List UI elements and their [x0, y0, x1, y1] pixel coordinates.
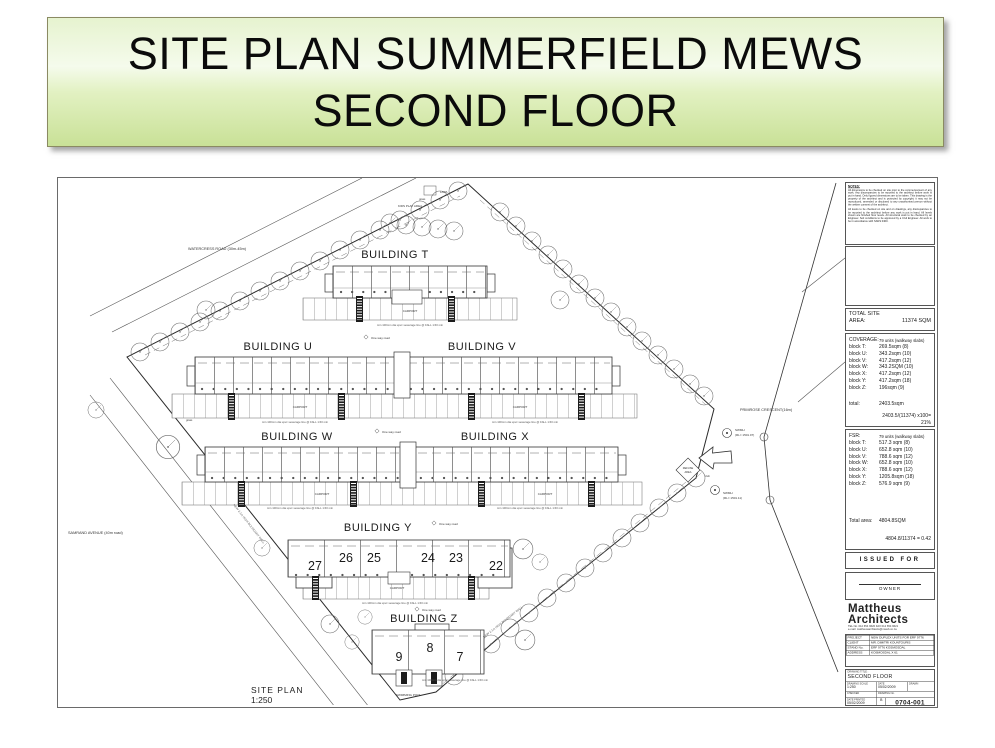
club-label: club	[705, 474, 710, 478]
entrance-arrow	[699, 447, 732, 469]
fsr-row-value: 576.9 sqm (9)	[879, 481, 931, 488]
notes-paragraph-2: All levels to be checked on site and on …	[848, 209, 932, 223]
carport-label-x: CARPORT	[538, 492, 553, 496]
address-value: KOSMOSDAL X 61	[870, 650, 934, 655]
scale-value: 1:250	[847, 686, 876, 690]
y-unit-23: 23	[449, 551, 463, 565]
swimming-pool-label: SWIMMING POOL	[396, 693, 421, 697]
carport-label-v: CARPORT	[513, 405, 528, 409]
coverage-box: COVERAGE: 79 units (walkway slabs) block…	[845, 333, 935, 427]
site-plan-drawing: BUILDING T BUILDING U BUILDING V BUILDIN…	[58, 178, 935, 705]
z-unit-8: 8	[427, 641, 434, 655]
one-way-label-1: One way road	[371, 336, 390, 340]
carport-label-t: CARPORT	[403, 309, 418, 313]
sewer-note-x: min 100mm dia upvc sewerage line @ FALL …	[497, 506, 564, 510]
fsr-row-value: 652.8 sqm (10)	[879, 447, 931, 454]
y-unit-26: 26	[339, 551, 353, 565]
building-x-label: BUILDING X	[461, 431, 529, 443]
y-unit-24: 24	[421, 551, 435, 565]
fsr-total-label: Total area:	[849, 518, 872, 525]
kids-play-label: KIDS PLAY AREA	[398, 204, 422, 208]
z-unit-7: 7	[457, 650, 464, 664]
fsr-row-value: 517.3 sqm (8)	[879, 440, 931, 447]
total-site-value: 11374 SQM	[902, 318, 931, 325]
coverage-row-label: block T:	[849, 344, 866, 351]
fsr-row-value: 652.8 sqm (10)	[879, 460, 931, 467]
lapa-structure	[424, 186, 436, 195]
building-t-label: BUILDING T	[361, 249, 429, 261]
fsr-box: FSR: 79 units (walkway slabs) block T:51…	[845, 429, 935, 550]
fsr-units: 79 units (walkway slabs)	[879, 433, 931, 440]
z-unit-9: 9	[396, 650, 403, 664]
coverage-row-value: 269.5sqm (8)	[879, 344, 931, 351]
grass-label-2: grass	[186, 418, 193, 422]
coverage-row-label: block X:	[849, 371, 867, 378]
swmh-marker-1	[723, 429, 732, 438]
coverage-units: 79 units (walkway slabs)	[879, 337, 931, 344]
y-unit-22: 22	[489, 559, 503, 573]
coverage-calc-2: 21%	[921, 420, 931, 427]
swmh-marker-2	[711, 486, 720, 495]
coverage-row-label: block Z:	[849, 385, 867, 392]
building-y-label: BUILDING Y	[344, 522, 412, 534]
notes-paragraph-1: All dimensions to be checked on site pri…	[848, 189, 932, 206]
fsr-row-label: block T:	[849, 440, 866, 447]
title-banner: SITE PLAN SUMMERFIELD MEWS SECOND FLOOR	[47, 17, 944, 147]
coverage-row-value: 196sqm (9)	[879, 385, 931, 392]
sewer-note-u: min 100mm dia upvc sewerage line @ FALL …	[262, 420, 329, 424]
total-site-box: TOTAL SITE AREA: 11374 SQM	[845, 308, 935, 331]
drawn-label: DRAWN	[909, 683, 933, 686]
plan-caption-scale: 1:250	[251, 695, 273, 705]
refuse-area-label-1: REFUSE	[683, 466, 694, 470]
revision-value: B	[878, 699, 885, 703]
road-label-primrose: PRIMROSE CRESCENT(16m)	[740, 408, 793, 412]
drawing-info-box: DRAWING TITLE : SECOND FLOOR DRAWING SCA…	[845, 669, 935, 706]
drawing-sheet: BUILDING T BUILDING U BUILDING V BUILDIN…	[57, 177, 938, 708]
project-info-box: PROJECTNEW DUPLEX UNITS FOR ERF 9776 CLI…	[845, 634, 935, 667]
notes-heading: NOTES:	[848, 185, 932, 188]
sewer-note-t: min 100mm dia upvc sewerage line @ FALL …	[377, 323, 444, 327]
coverage-row-value: 343.2SQM (10)	[879, 364, 931, 371]
issued-for-client-label: ISSUED FOR CLIENT	[846, 553, 934, 569]
fsr-row-label: block Z:	[849, 481, 867, 488]
coverage-total-label: total:	[849, 401, 860, 408]
fsr-calc: 4804.8/11374 = 0.42	[885, 536, 931, 543]
firm-name-line2: Architects	[848, 615, 932, 626]
y-unit-25: 25	[367, 551, 381, 565]
building-w-label: BUILDING W	[261, 431, 332, 443]
one-way-label-4: One way road	[422, 608, 441, 612]
road-label-samrand: SAMRAND AVENUE (40m road)	[68, 531, 124, 535]
road-label-watercress: WATERCRESS ROAD (30m-45m)	[188, 247, 247, 251]
signature-line	[859, 584, 921, 585]
swmh-rl-1: (RL= 1501.07)	[735, 433, 754, 437]
fsr-total-value: 4804.8SQM	[879, 518, 931, 525]
building-w-x	[182, 442, 642, 507]
coverage-row-label: block W:	[849, 364, 868, 371]
drawing-title-value: SECOND FLOOR	[848, 674, 893, 680]
owner-label: OWNER	[846, 586, 934, 591]
y-unit-27: 27	[308, 559, 322, 573]
boundary-note-left: NEW 2.1m HIGH BOUNDARY WALL	[232, 503, 266, 545]
refuse-area-label-2: AREA	[684, 470, 691, 474]
sewer-note-w: min 100mm dia upvc sewerage line @ FALL …	[267, 506, 334, 510]
one-way-label-3: One way road	[439, 522, 458, 526]
coverage-row-label: block U:	[849, 351, 867, 358]
drawing-no-label: DRAWING No.	[878, 692, 933, 695]
coverage-label: COVERAGE:	[849, 337, 879, 344]
page-title-line1: SITE PLAN SUMMERFIELD MEWS	[128, 25, 864, 82]
firm-box: Mattheus Architects TEL No. 012 654 9620…	[845, 602, 935, 633]
coverage-row-label: block V:	[849, 358, 867, 365]
total-site-label-2: AREA:	[849, 318, 866, 325]
carport-label-y: CARPORT	[390, 586, 405, 590]
building-z-label: BUILDING Z	[390, 613, 458, 625]
page: SITE PLAN SUMMERFIELD MEWS SECOND FLOOR	[0, 0, 995, 748]
printed-value: 05/02/2009	[847, 702, 876, 706]
issued-box: ISSUED FOR CLIENT	[845, 552, 935, 569]
fsr-row-label: block U:	[849, 447, 867, 454]
fsr-row-value: 788.6 sqm (12)	[879, 467, 931, 474]
blank-box	[845, 246, 935, 306]
building-t	[303, 266, 517, 322]
total-site-label-1: TOTAL SITE	[849, 311, 931, 318]
fsr-row-label: block V:	[849, 454, 867, 461]
grass-label-1: grass	[419, 197, 426, 201]
swmh-label-2: SWMH	[723, 491, 733, 495]
one-way-label-2: One way road	[382, 430, 401, 434]
coverage-row-value: 343.2sqm (10)	[879, 351, 931, 358]
building-z	[372, 624, 484, 686]
drawing-number: 0704-001	[887, 699, 933, 707]
sewer-note-v: min 100mm dia upvc sewerage line @ FALL …	[492, 420, 559, 424]
notes-box: NOTES: All dimensions to be checked on s…	[845, 182, 935, 245]
fsr-row-label: block Y:	[849, 474, 866, 481]
swmh-rl-2: (RL= 1501.11)	[723, 496, 742, 500]
firm-name-line1: Mattheus	[848, 604, 932, 615]
swmh-label-1: SWMH	[735, 428, 745, 432]
firm-contact-line2: e-mail: mattheusarchitects@mweb.co.za	[848, 628, 932, 631]
building-v-label: BUILDING V	[448, 341, 516, 353]
coverage-row-label: block Y:	[849, 378, 866, 385]
sewer-note-z: min 100mm dia upvc sewerage line @ FALL …	[422, 678, 489, 682]
sewer-note-y: min 100mm dia upvc sewerage line @ FALL …	[362, 601, 429, 605]
carport-label-u: CARPORT	[293, 405, 308, 409]
lapa-label: LAPA	[440, 190, 447, 194]
address-label: ADDRESS	[846, 650, 870, 655]
coverage-total-value: 2403.5sqm	[879, 401, 931, 408]
coverage-row-value: 417.2sqm (18)	[879, 378, 931, 385]
fsr-row-label: block W:	[849, 460, 868, 467]
fsr-row-value: 788.6 sqm (12)	[879, 454, 931, 461]
fsr-label: FSR:	[849, 433, 860, 440]
coverage-row-value: 417.2sqm (12)	[879, 371, 931, 378]
page-title-line2: SECOND FLOOR	[312, 82, 678, 139]
checked-label: CHECKED	[847, 692, 876, 695]
date-value: 05/02/2009	[878, 686, 907, 690]
building-u-label: BUILDING U	[244, 341, 313, 353]
owner-box: OWNER	[845, 572, 935, 600]
carport-label-w: CARPORT	[315, 492, 330, 496]
coverage-row-value: 417.2sqm (12)	[879, 358, 931, 365]
plan-caption-title: SITE PLAN	[251, 685, 303, 695]
fsr-row-label: block X:	[849, 467, 867, 474]
fsr-row-value: 1205.8sqm (18)	[879, 474, 931, 481]
coverage-calc-1: 2403.5/(11374) x100=	[882, 413, 931, 420]
building-u-v	[172, 352, 637, 420]
